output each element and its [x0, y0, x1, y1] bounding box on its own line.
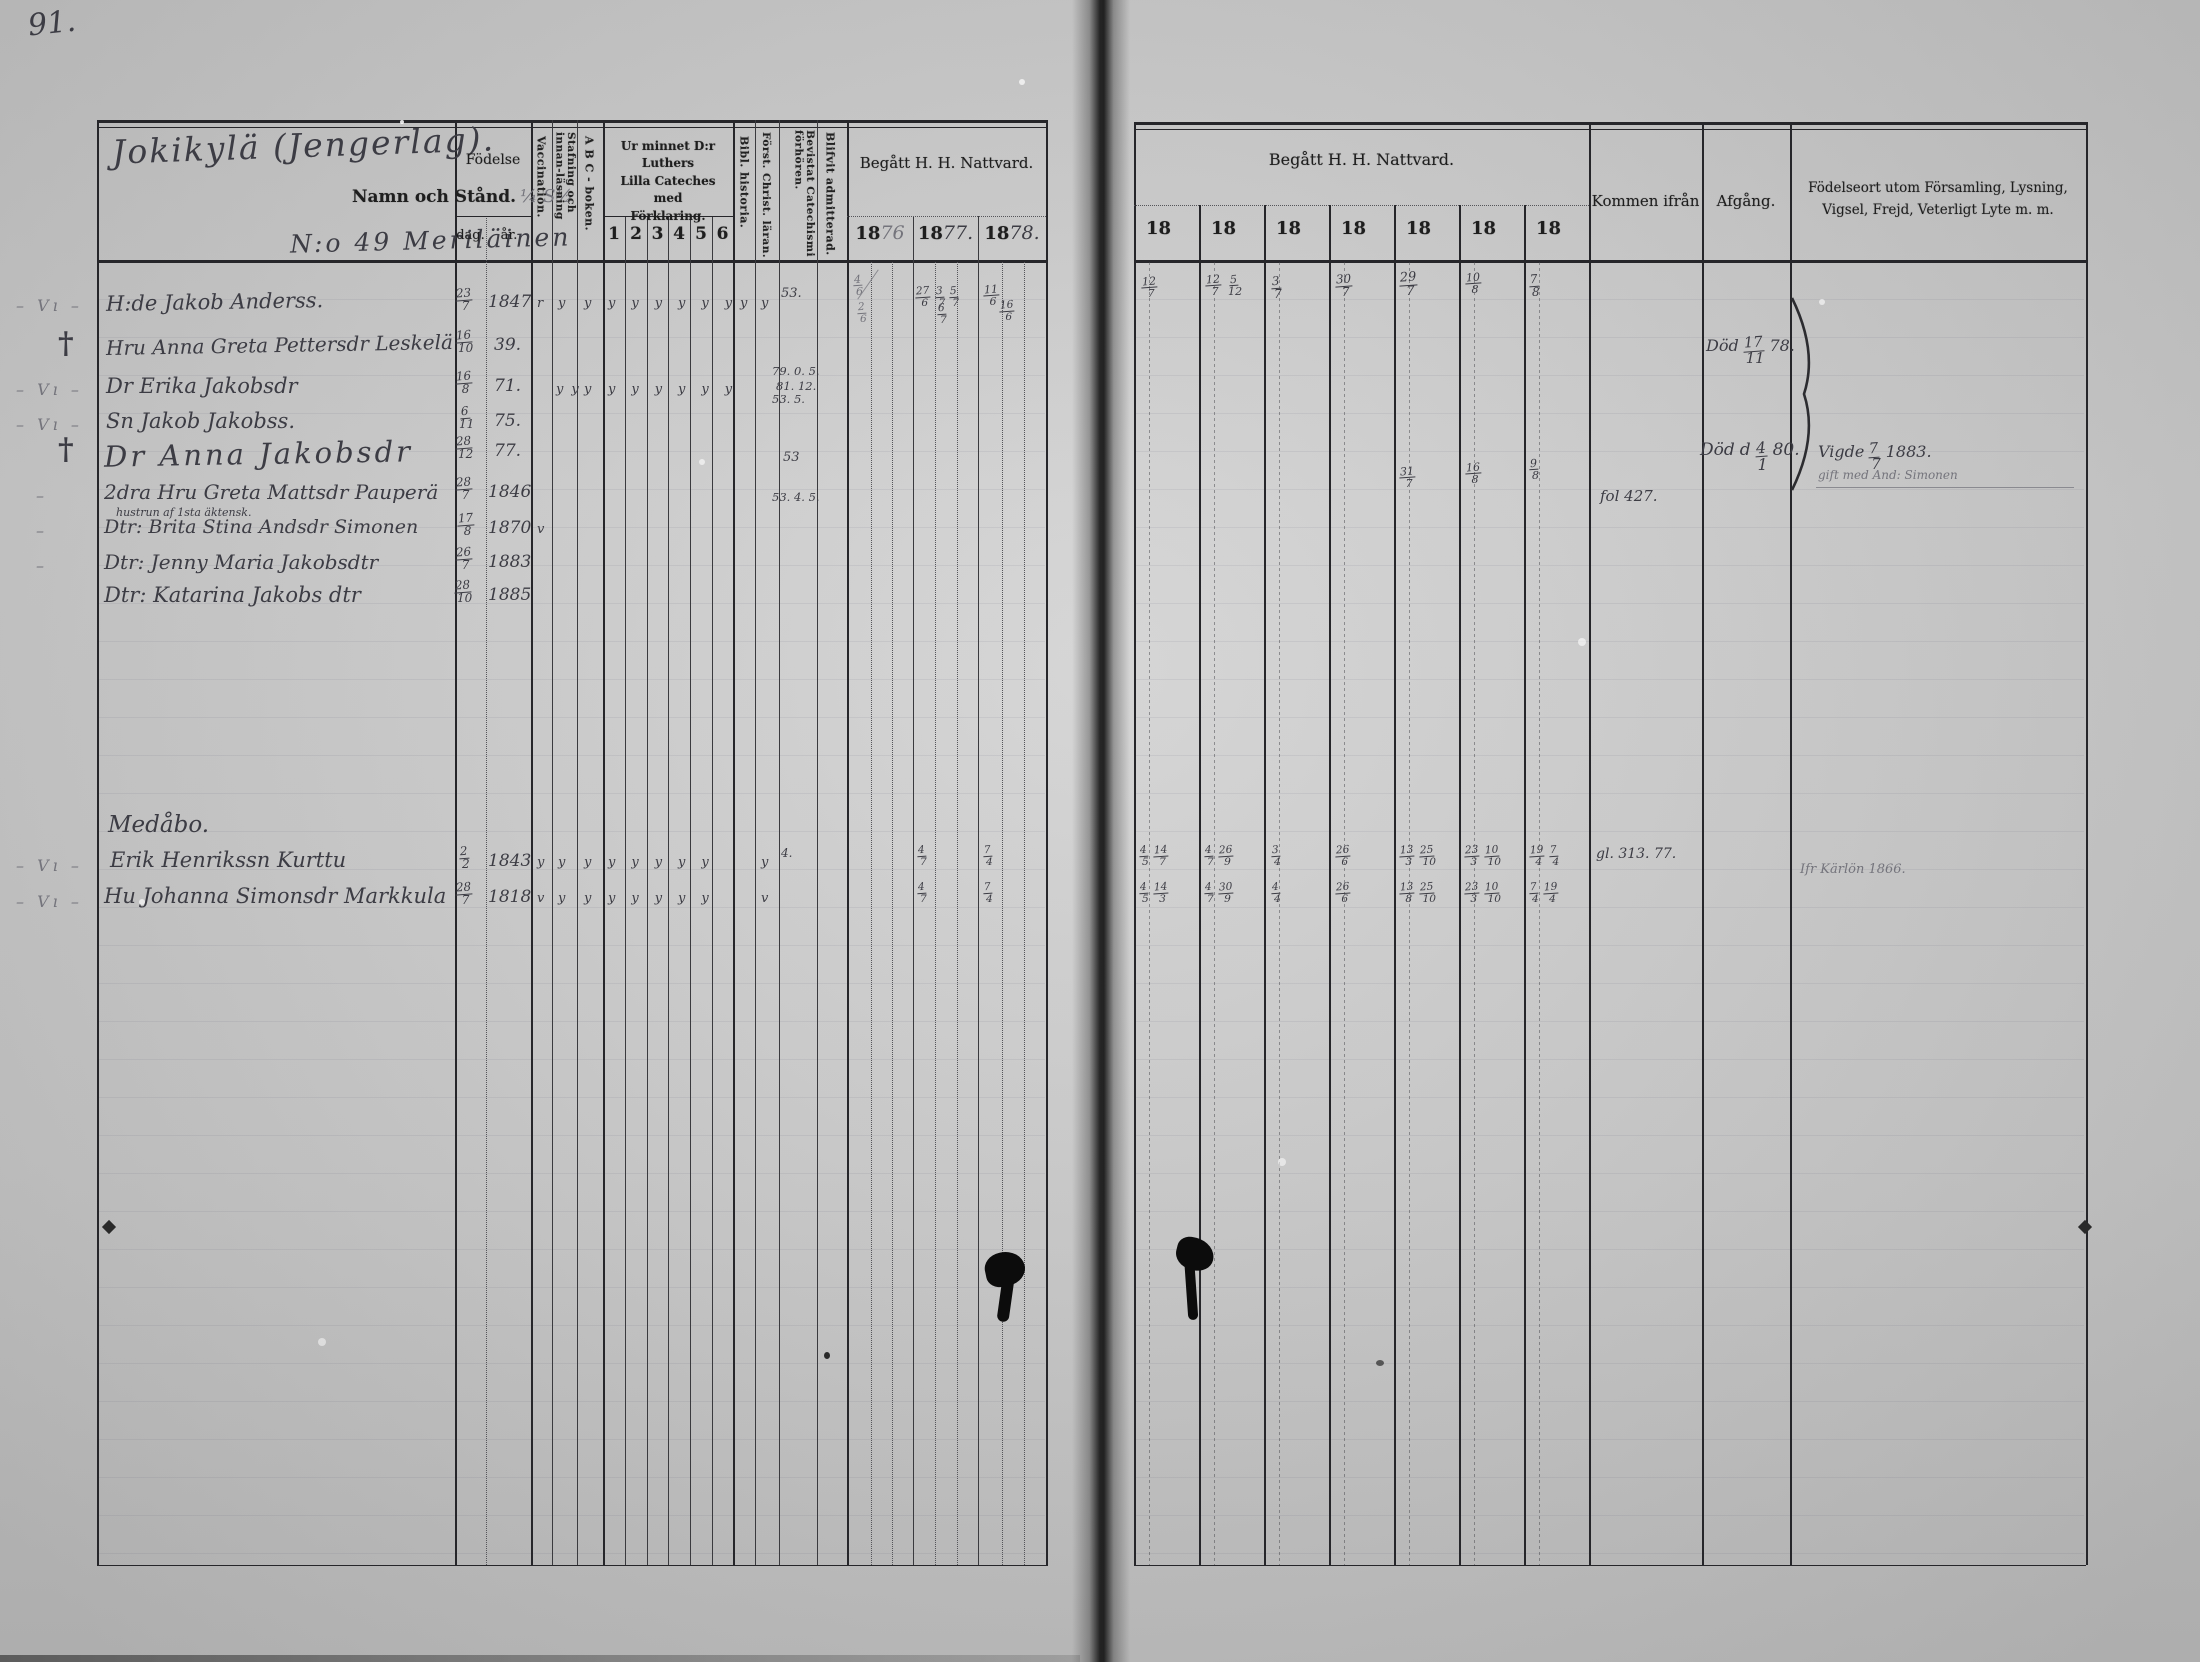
communion-dates: 37 [1272, 276, 1328, 301]
exam-score: 4. [781, 846, 792, 860]
abc-book-header: A B C - boken. [582, 136, 594, 258]
death-note: Dödd4180. [1700, 440, 1800, 472]
communion-dates: 127 [1142, 276, 1198, 299]
birth-day: 2812 [456, 436, 473, 461]
communion-dates: 44 [1272, 882, 1330, 904]
communion-dates: 307 [1336, 274, 1392, 299]
scan-bottom-edge [0, 1655, 1080, 1662]
left-table-right-border [1046, 120, 1048, 1565]
year-1878: 1878. [978, 222, 1046, 244]
col18-label: 18 [1211, 218, 1236, 239]
person-name: Dtr: Brita Stina Andsdr Simonen [104, 516, 418, 538]
person-name: Dr Anna Jakobsdr [104, 434, 414, 473]
catechism-header-line1: Ur minnet D:r Luthers [605, 138, 731, 173]
communion-1877: 47 [918, 845, 927, 867]
exam-score: 53 [783, 450, 800, 465]
exam-score: 53. [781, 286, 802, 301]
catechism-header: Ur minnet D:r Luthers Lilla Cateches med… [605, 138, 731, 225]
birth-day: 22 [460, 846, 470, 871]
doctrine-mark: v [761, 891, 768, 906]
margin-mark: – Vı – [16, 380, 83, 399]
name-column-header: Namn och Stånd. [352, 187, 516, 207]
doctrine-mark: y [761, 855, 768, 870]
christian-doctrine-header: Först. Christ. läran. [759, 132, 771, 258]
birth-day: 287 [456, 882, 473, 907]
col18-label: 18 [1341, 218, 1366, 239]
bible-history-header: Bibl. historia. [737, 136, 749, 258]
catechism-col-6: 6 [712, 224, 733, 244]
col18-label: 18 [1406, 218, 1431, 239]
death-note: Död171178. [1706, 336, 1795, 366]
spelling-reading-header: Stafning och innan-läsning [553, 132, 576, 258]
communion-1877: 2763757 [916, 286, 978, 308]
year-1876-printed: 18 [855, 223, 880, 244]
catechism-marks: yyyyyy [608, 382, 748, 397]
birth-year: 1818 [488, 887, 531, 907]
col18-label: 18 [1471, 218, 1496, 239]
communion-header-right: Begått H. H. Nattvard. [1134, 150, 1589, 169]
communion-dates: 19474 [1530, 845, 1588, 867]
exam-score: 79. 0. 5. [772, 364, 820, 378]
birth-day: 237 [456, 288, 473, 313]
col-line [552, 120, 553, 1565]
communion-dates: 34 [1272, 845, 1330, 867]
col18-top-line [1134, 205, 1589, 206]
vaccination-mark: v [537, 522, 544, 537]
person-name: Sn Jakob Jakobss. [106, 409, 295, 433]
communion-1877: 67 [938, 303, 947, 325]
attended-exams-header: Bevistat Catechismi förhören. [783, 130, 815, 258]
col18-label: 18 [1146, 218, 1171, 239]
person-name: Erik Henrikssn Kurttu [110, 848, 346, 872]
scanned-ledger-spread: 91. [0, 0, 2200, 1662]
fodelse-sub-line [455, 216, 531, 217]
catechism-col-2: 2 [625, 224, 647, 244]
year-1878-printed: 18 [984, 223, 1009, 244]
birth-year: 1870 [488, 518, 531, 538]
right-table-top-border-inner [1134, 129, 2086, 130]
year-1876-hand: 76 [880, 222, 904, 244]
birth-year: 1843 [488, 851, 531, 871]
birth-day: 611 [458, 406, 473, 431]
vaccination-mark: y [537, 855, 544, 870]
communion-1878: 116 [984, 284, 1000, 307]
exam-score-3: 53. 5. [772, 392, 805, 406]
person-name: H:de Jakob Anderss. [106, 288, 324, 316]
col-line [957, 262, 958, 1565]
col-line [935, 262, 936, 1565]
col-line [755, 120, 756, 1565]
communion-dates: 1332510 [1400, 845, 1458, 867]
person-name: Dtr: Katarina Jakobs dtr [104, 583, 361, 607]
folio-reference: fol 427. [1600, 487, 1658, 505]
col-line [817, 120, 818, 1565]
communion-1878: 74 [984, 882, 993, 904]
household-brace [1788, 296, 1818, 492]
left-table-bottom-border [97, 1565, 1048, 1566]
left-table-top-border [97, 120, 1048, 123]
communion-dates: 45147 [1140, 845, 1198, 867]
birthplace-header-line2: Vigsel, Frejd, Veterligt Lyte m. m. [1795, 200, 2081, 222]
page-number: 91. [26, 4, 77, 44]
birthplace-notes-header: Födelseort utom Församling, Lysning, Vig… [1795, 178, 2081, 221]
catechism-col-1: 1 [603, 224, 625, 244]
margin-mark: – Vı – [16, 296, 83, 315]
birth-year-header: år. [488, 228, 530, 243]
vaccination-mark: r [537, 296, 543, 311]
person-name: Dr Erika Jakobsdr [106, 374, 298, 398]
communion-1876: 26 [858, 302, 867, 324]
communion-dates: 78 [1530, 274, 1586, 299]
communion-1877: 47 [918, 882, 927, 904]
spelling-mark: y [558, 296, 565, 311]
col-line [913, 216, 914, 1565]
margin-mark: – [36, 486, 44, 505]
col-line [847, 120, 849, 1565]
ink-speck [1376, 1360, 1384, 1366]
vaccination-header: Vaccination. [534, 136, 546, 258]
communion-1878: 166 [1000, 300, 1015, 322]
birth-day: 2810 [455, 580, 472, 605]
margin-mark: – Vı – [16, 856, 83, 875]
col-line [892, 262, 893, 1565]
year-1878-hand: 78. [1009, 222, 1039, 244]
communion-dates: 1382510 [1400, 882, 1458, 904]
admitted-header: Blifvit admitterad. [823, 132, 835, 258]
catechism-marks: yyyyyy [608, 296, 748, 311]
note-underline [1816, 487, 2074, 488]
years-sub-line [847, 216, 1046, 217]
communion-dates: 127512 [1206, 274, 1262, 297]
birth-year: 71. [494, 376, 521, 396]
communion-dates: 266 [1336, 882, 1394, 904]
col-line [531, 120, 533, 1565]
communion-dates: 266 [1336, 845, 1394, 867]
catechism-header-line2: Lilla Cateches med [605, 173, 731, 208]
col-line [603, 120, 605, 1565]
communion-dates: 2331010 [1465, 882, 1523, 904]
abc-mark: y [584, 296, 591, 311]
communion-dates: 47309 [1205, 882, 1263, 904]
communion-dates: 2331010 [1465, 845, 1523, 867]
col-line [733, 120, 735, 1565]
year-1877-printed: 18 [918, 223, 943, 244]
communion-dates: 317 [1400, 466, 1456, 489]
birthplace-header-line1: Födelseort utom Församling, Lysning, [1795, 178, 2081, 200]
birth-day-header: dag. [455, 228, 486, 243]
birth-day: 287 [456, 477, 473, 502]
communion-1878: 74 [984, 845, 993, 867]
communion-dates: 47269 [1205, 845, 1263, 867]
exam-score: 53. 4. 5. [772, 490, 820, 504]
departure-header: Afgång. [1702, 192, 1790, 210]
communion-dates: 45143 [1140, 882, 1198, 904]
birth-year: 1847 [488, 292, 531, 312]
vaccination-mark: v [537, 891, 544, 906]
birth-year: 1846 [488, 482, 531, 502]
col-line [978, 216, 979, 1565]
doctrine-mark: y [761, 296, 768, 311]
spelling-mark: y [558, 855, 565, 870]
birth-year: 75. [494, 411, 521, 431]
origin-note: Ifr Kärlön 1866. [1800, 862, 1906, 877]
year-1876: 1876 [847, 222, 913, 244]
right-table-top-border [1134, 122, 2086, 125]
col-line [1702, 122, 1704, 1565]
margin-mark: – [36, 521, 44, 540]
communion-sub-dividers [1134, 262, 1589, 1565]
exam-score-2: 81. 12. [776, 379, 816, 393]
col-line [871, 262, 872, 1565]
communion-dates: 98 [1530, 458, 1586, 481]
birth-year: 1885 [488, 585, 531, 605]
col-line [1589, 122, 1591, 1565]
bible-history-mark: y [740, 296, 747, 311]
catechism-col-5: 5 [690, 224, 712, 244]
abc-mark: y [584, 891, 591, 906]
birth-day: 168 [456, 371, 473, 396]
right-table-right-border [2086, 122, 2088, 1565]
birth-year: 39. [494, 335, 521, 355]
birth-year: 77. [494, 441, 521, 461]
spelling-mark: y [558, 891, 565, 906]
deceased-cross-mark: † [58, 326, 74, 361]
col-line [779, 120, 780, 1565]
birth-day: 1610 [456, 330, 473, 355]
margin-mark: – Vı – [16, 892, 83, 911]
col-line [1024, 262, 1025, 1565]
person-name: Dtr: Jenny Maria Jakobsdtr [104, 550, 378, 574]
right-table-bottom-border [1134, 1565, 2086, 1566]
section-label-handwritten: Medåbo. [108, 812, 209, 838]
book-binding-fold [1072, 0, 1130, 1662]
col18-label: 18 [1276, 218, 1301, 239]
folio-reference: gl. 313. 77. [1596, 846, 1676, 862]
birth-year: 1883 [488, 552, 531, 572]
catechism-col-4: 4 [668, 224, 690, 244]
catechism-marks: yyyyy [608, 891, 725, 906]
paper-dust [400, 120, 404, 124]
ink-speck [824, 1352, 830, 1359]
col-line [577, 120, 578, 1565]
year-1877: 1877. [913, 222, 978, 244]
birth-header: Födelse [455, 152, 531, 168]
col-line [1002, 262, 1003, 1565]
catechism-col-3: 3 [647, 224, 668, 244]
spelling-mark: yy [556, 382, 587, 397]
remarriage-note: gift med And: Simonen [1818, 468, 1958, 482]
birth-day: 267 [456, 547, 473, 572]
abc-mark: y [584, 855, 591, 870]
col-line [486, 216, 487, 1565]
catechism-marks: yyyyy [608, 855, 725, 870]
communion-header-left: Begått H. H. Nattvard. [847, 154, 1046, 172]
catechism-header-line3: Förklaring. [605, 208, 731, 225]
year-1877-hand: 77. [943, 222, 973, 244]
communion-dates: 108 [1466, 272, 1522, 295]
margin-mark: – [36, 556, 44, 575]
communion-dates: 74194 [1530, 882, 1588, 904]
birth-day: 178 [458, 513, 475, 538]
communion-dates: 297 [1400, 272, 1456, 299]
deceased-cross-mark: † [58, 432, 74, 467]
person-name: Hu Johanna Simonsdr Markkula [104, 884, 446, 908]
communion-dates: 168 [1466, 462, 1522, 485]
col18-label: 18 [1536, 218, 1561, 239]
abc-mark: y [584, 382, 591, 397]
arrived-from-header: Kommen ifrån [1589, 192, 1702, 210]
person-name: 2dra Hru Greta Mattsdr Pauperä [104, 480, 438, 504]
